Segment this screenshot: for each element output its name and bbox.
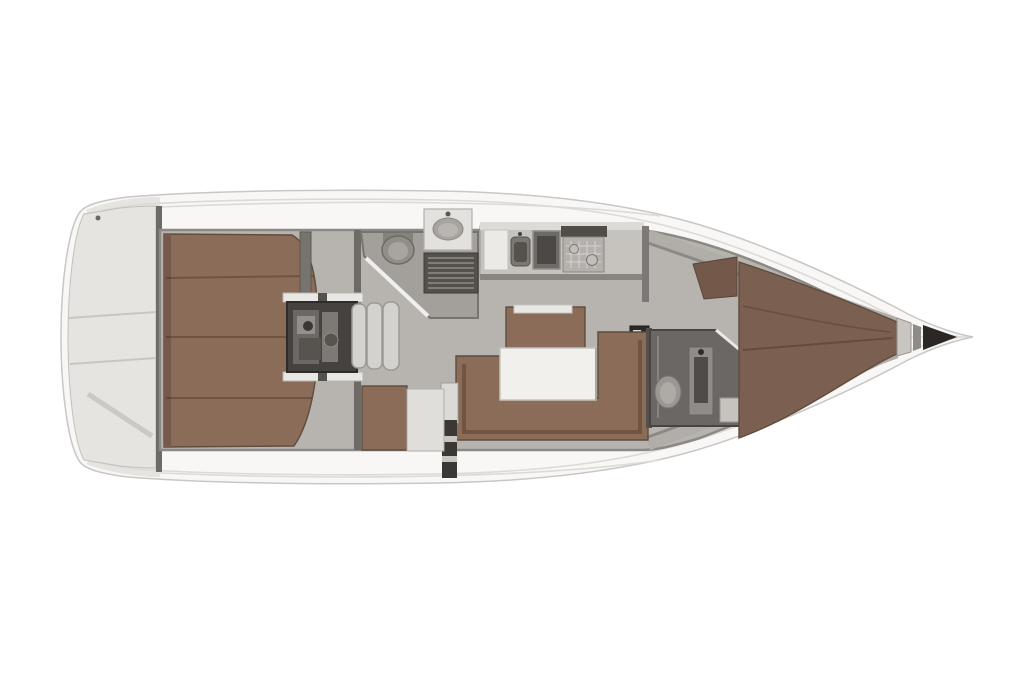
galley-counter-front-edge	[480, 274, 644, 280]
aft-wardrobe	[300, 232, 311, 300]
engine-hatch-top-latch	[318, 293, 327, 302]
companionway-step-1	[352, 304, 366, 368]
bow-bulkhead-1	[897, 318, 911, 356]
nav-seat	[362, 386, 407, 450]
galley-cabinet	[484, 230, 508, 270]
salon-table	[500, 348, 596, 400]
fwd-head-basin-inner	[660, 382, 676, 404]
yacht-floorplan-image	[0, 0, 1024, 682]
companionway-step-2	[367, 303, 382, 369]
galley-sink-large-basin	[537, 236, 556, 264]
engine-pulley-icon	[303, 321, 313, 331]
engine-filter-icon	[324, 333, 338, 347]
shower-head-icon	[698, 349, 704, 355]
engine-hatch-bottom-latch	[318, 372, 327, 381]
stern-platform	[68, 206, 162, 472]
stern-cleat-icon	[96, 216, 101, 221]
galley-fwd-bulkhead	[642, 226, 649, 302]
aft-head-faucet-icon	[446, 212, 451, 217]
shower-panel	[694, 357, 708, 403]
stove-burner-1	[570, 245, 579, 254]
aft-berth-headboard	[164, 234, 171, 447]
stove-hood	[561, 226, 607, 237]
toilet-bowl	[388, 242, 408, 260]
louver-slats	[428, 258, 474, 288]
engine-detail-2	[299, 338, 321, 360]
galley-sink-small-basin	[514, 242, 527, 262]
stove-burner-2	[587, 255, 598, 266]
aft-head-basin-inner	[438, 223, 458, 237]
nav-station	[362, 386, 444, 451]
galley-faucet-icon	[518, 232, 522, 236]
bow-bulkhead-2	[913, 324, 921, 351]
salon-bulkhead-bottom	[354, 372, 361, 450]
port-bench-top	[514, 305, 572, 313]
floorplan-svg	[0, 0, 1024, 682]
side-locker-band-2	[442, 456, 457, 462]
companionway-step-3	[383, 302, 399, 370]
nav-table	[407, 389, 444, 451]
